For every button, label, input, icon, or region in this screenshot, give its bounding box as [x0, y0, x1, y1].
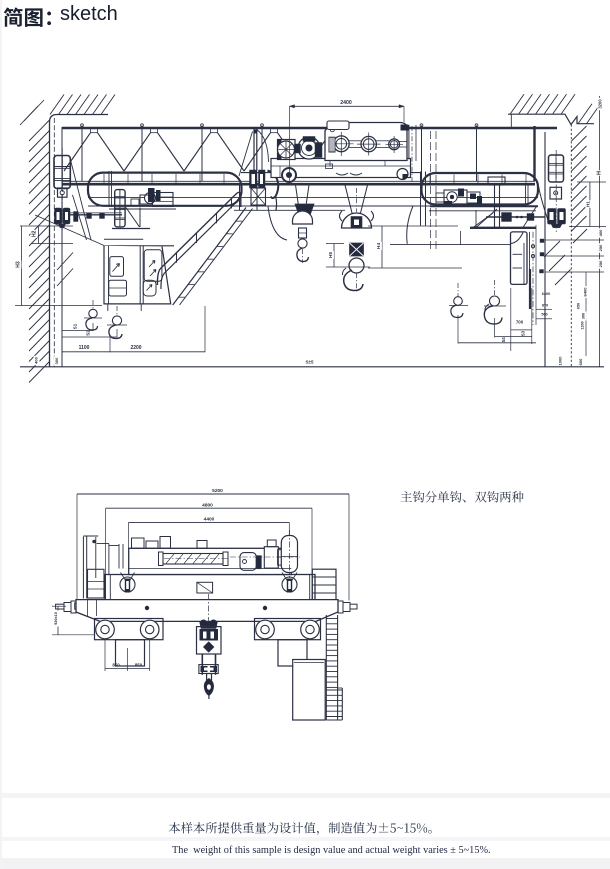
svg-text:1100: 1100 [79, 345, 90, 351]
svg-text:H2: H2 [31, 230, 37, 237]
svg-text:H1: H1 [586, 201, 591, 207]
svg-text:H5: H5 [328, 252, 334, 258]
svg-text:S4: S4 [501, 337, 506, 343]
svg-text:S±5: S±5 [306, 360, 314, 365]
svg-text:6400: 6400 [583, 287, 588, 297]
svg-text:850: 850 [112, 662, 120, 667]
svg-text:600: 600 [578, 358, 583, 365]
svg-text:S3: S3 [521, 330, 526, 336]
svg-text:870: 870 [542, 304, 548, 308]
svg-text:1100: 1100 [581, 321, 585, 329]
svg-text:650: 650 [577, 303, 581, 309]
svg-text:6400: 6400 [542, 292, 550, 296]
svg-text:4400: 4400 [204, 516, 215, 522]
svg-text:700: 700 [516, 320, 524, 325]
svg-text:300: 300 [582, 313, 586, 319]
svg-text:H4: H4 [376, 243, 382, 249]
svg-text:850: 850 [135, 662, 143, 667]
svg-text:2200: 2200 [130, 345, 141, 351]
svg-text:H3: H3 [15, 261, 21, 268]
svg-text:H: H [596, 171, 602, 175]
svg-text:400: 400 [598, 229, 603, 236]
svg-text:250: 250 [598, 260, 603, 267]
svg-text:250: 250 [598, 244, 603, 251]
svg-text:3200: 3200 [598, 99, 603, 109]
svg-text:5200: 5200 [212, 488, 223, 494]
svg-text:500: 500 [541, 313, 547, 317]
svg-text:1000: 1000 [558, 356, 563, 366]
svg-text:2400: 2400 [340, 100, 352, 106]
svg-text:S1: S1 [73, 323, 78, 329]
svg-text:300: 300 [54, 357, 59, 364]
svg-text:400: 400 [34, 356, 39, 363]
svg-text:S2: S2 [86, 330, 91, 336]
svg-text:920±10: 920±10 [54, 612, 58, 625]
svg-text:4800: 4800 [202, 502, 213, 508]
